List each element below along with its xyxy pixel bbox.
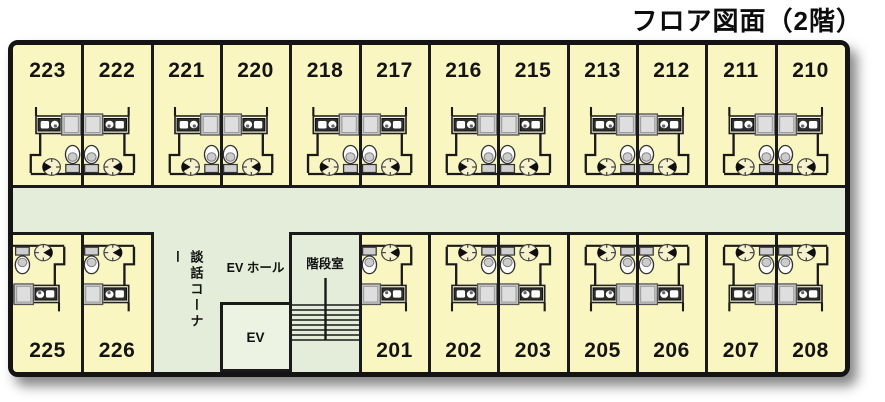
bathtub-icon bbox=[222, 114, 241, 135]
shower-drain-icon bbox=[520, 159, 538, 176]
room-210: 210 bbox=[776, 45, 845, 185]
sink-unit-icon bbox=[659, 119, 681, 132]
shower-drain-icon bbox=[520, 244, 538, 260]
page: フロア図面（2階） bbox=[0, 0, 885, 402]
toilet-icon bbox=[204, 146, 218, 173]
room-217: 217 bbox=[360, 45, 429, 185]
room-number: 216 bbox=[429, 59, 498, 83]
bathroom-wall bbox=[540, 134, 550, 174]
wall bbox=[497, 232, 500, 372]
room-number: 222 bbox=[82, 59, 152, 83]
floor-plan-frame: 223 bbox=[8, 40, 850, 377]
wall bbox=[775, 232, 778, 372]
bathroom-wall bbox=[586, 247, 595, 286]
wall bbox=[428, 45, 431, 188]
sink-unit-icon bbox=[104, 119, 126, 132]
sink-unit-icon bbox=[593, 288, 615, 300]
shower-drain-icon bbox=[736, 244, 754, 260]
toilet-icon bbox=[343, 146, 357, 173]
room-number: 221 bbox=[152, 59, 221, 83]
bathtub-icon bbox=[201, 114, 220, 135]
bathtub-icon bbox=[14, 284, 33, 305]
shower-drain-icon bbox=[181, 159, 199, 176]
sink-unit-icon bbox=[520, 288, 542, 300]
room-220: 220 bbox=[221, 45, 290, 185]
toilet-icon bbox=[223, 146, 237, 173]
shower-drain-icon bbox=[659, 244, 677, 260]
room-number: 217 bbox=[360, 59, 429, 83]
shower-drain-icon bbox=[597, 159, 615, 176]
bathroom-wall bbox=[724, 247, 734, 286]
wall bbox=[289, 45, 292, 188]
room-218: 218 bbox=[290, 45, 360, 185]
sink-unit-icon bbox=[454, 119, 476, 132]
bathroom-wall bbox=[55, 247, 64, 286]
room-number: 205 bbox=[568, 339, 637, 363]
room-number: 211 bbox=[706, 59, 776, 83]
shower-drain-icon bbox=[382, 244, 400, 260]
room-222: 222 bbox=[82, 45, 152, 185]
toilet-icon bbox=[639, 247, 653, 273]
bathtub-icon bbox=[499, 114, 519, 135]
bathtub-icon bbox=[83, 114, 103, 135]
bathroom-wall bbox=[679, 247, 688, 286]
bathtub-icon bbox=[755, 284, 775, 305]
room-number: 223 bbox=[13, 59, 82, 83]
bathtub-icon bbox=[478, 114, 497, 135]
shower-drain-icon bbox=[798, 244, 816, 260]
room-221: 221 bbox=[152, 45, 221, 185]
toilet-icon bbox=[620, 247, 634, 273]
wall bbox=[151, 45, 154, 188]
toilet-icon bbox=[362, 146, 376, 173]
room-206: 206 bbox=[637, 235, 706, 372]
room-number: 207 bbox=[706, 339, 776, 363]
toilet-icon bbox=[759, 146, 773, 173]
sink-unit-icon bbox=[35, 288, 57, 300]
wall bbox=[81, 45, 84, 188]
sink-unit-icon bbox=[243, 119, 265, 132]
toilet-icon bbox=[84, 146, 98, 173]
room-number: 201 bbox=[360, 339, 429, 363]
room-211: 211 bbox=[706, 45, 776, 185]
room-number: 202 bbox=[429, 339, 498, 363]
wall bbox=[497, 45, 500, 188]
room-216: 216 bbox=[429, 45, 498, 185]
bathtub-icon bbox=[755, 114, 775, 135]
sink-unit-icon bbox=[382, 119, 404, 132]
wall bbox=[705, 45, 708, 188]
room-number: 220 bbox=[221, 59, 290, 83]
room-205: 205 bbox=[568, 235, 637, 372]
room-226: 226 bbox=[82, 235, 152, 372]
room-225: 225 bbox=[13, 235, 82, 372]
bathroom-wall bbox=[31, 134, 40, 174]
shower-drain-icon bbox=[736, 159, 754, 176]
toilet-icon bbox=[15, 247, 29, 273]
sink-unit-icon bbox=[798, 119, 820, 132]
bathroom-wall bbox=[679, 134, 688, 174]
shower-drain-icon bbox=[104, 159, 122, 176]
sink-unit-icon bbox=[731, 119, 753, 132]
shower-drain-icon bbox=[35, 244, 53, 260]
bathroom-wall bbox=[447, 134, 456, 174]
shower-drain-icon bbox=[798, 159, 816, 176]
bathtub-icon bbox=[617, 114, 636, 135]
lounge-corner-label: 談話コーナー bbox=[152, 250, 221, 342]
bathtub-icon bbox=[361, 114, 380, 135]
toilet-icon bbox=[65, 146, 79, 173]
page-title: フロア図面（2階） bbox=[632, 1, 863, 38]
room-203: 203 bbox=[498, 235, 568, 372]
bathtub-icon bbox=[361, 284, 380, 305]
room-number: 208 bbox=[776, 339, 845, 363]
sink-unit-icon bbox=[177, 119, 199, 132]
stairwell-label: 階段室 bbox=[290, 253, 360, 272]
wall bbox=[567, 232, 570, 372]
sink-unit-icon bbox=[520, 119, 542, 132]
toilet-icon bbox=[778, 247, 792, 273]
shower-drain-icon bbox=[42, 159, 60, 176]
room-number: 206 bbox=[637, 339, 706, 363]
bathroom-wall bbox=[540, 247, 550, 286]
wall bbox=[705, 232, 708, 372]
sink-unit-icon bbox=[798, 288, 820, 300]
room-number: 215 bbox=[498, 59, 568, 83]
bathroom-wall bbox=[724, 134, 734, 174]
wall bbox=[359, 45, 362, 188]
wall bbox=[81, 232, 84, 372]
plan-inner: 223 bbox=[13, 45, 845, 372]
bathtub-icon bbox=[638, 114, 657, 135]
bathtub-icon bbox=[83, 284, 103, 305]
wall bbox=[567, 45, 570, 188]
elevator-shaft: EV bbox=[220, 302, 292, 372]
bathroom-wall bbox=[402, 247, 411, 286]
bathroom-wall bbox=[818, 247, 827, 286]
bathtub-icon bbox=[617, 284, 636, 305]
bathroom-wall bbox=[402, 134, 411, 174]
bathtub-icon bbox=[478, 284, 497, 305]
shower-drain-icon bbox=[320, 159, 338, 176]
room-208: 208 bbox=[776, 235, 845, 372]
wall bbox=[636, 45, 639, 188]
bathtub-icon bbox=[62, 114, 81, 135]
bathroom-wall bbox=[124, 134, 134, 174]
bathroom-wall bbox=[170, 134, 179, 174]
room-number: 210 bbox=[776, 59, 845, 83]
toilet-icon bbox=[778, 146, 792, 173]
room-202: 202 bbox=[429, 235, 498, 372]
toilet-icon bbox=[362, 247, 376, 273]
bathtub-icon bbox=[777, 284, 796, 305]
wall bbox=[775, 45, 778, 188]
shower-drain-icon bbox=[458, 244, 476, 260]
room-207: 207 bbox=[706, 235, 776, 372]
room-number: 203 bbox=[498, 339, 568, 363]
sink-unit-icon bbox=[104, 288, 126, 300]
sink-unit-icon bbox=[593, 119, 615, 132]
bathtub-icon bbox=[499, 284, 519, 305]
room-number: 226 bbox=[82, 339, 152, 363]
room-223: 223 bbox=[13, 45, 82, 185]
bathroom-wall bbox=[586, 134, 595, 174]
sink-unit-icon bbox=[659, 288, 681, 300]
lounge-corner-text: 談話コーナー bbox=[168, 250, 206, 342]
toilet-icon bbox=[620, 146, 634, 173]
toilet-icon bbox=[84, 247, 98, 273]
ev-hall-label: EV ホール bbox=[221, 257, 290, 276]
sink-unit-icon bbox=[731, 288, 753, 300]
sink-unit-icon bbox=[454, 288, 476, 300]
wall bbox=[428, 232, 431, 372]
room-201: 201 bbox=[360, 235, 429, 372]
shower-drain-icon bbox=[458, 159, 476, 176]
wall bbox=[220, 45, 223, 188]
shower-drain-icon bbox=[104, 244, 122, 260]
bathtub-icon bbox=[339, 114, 359, 135]
bathroom-wall bbox=[447, 247, 456, 286]
room-215: 215 bbox=[498, 45, 568, 185]
sink-unit-icon bbox=[38, 119, 60, 132]
toilet-icon bbox=[500, 146, 514, 173]
bathroom-wall bbox=[308, 134, 318, 174]
sink-unit-icon bbox=[315, 119, 337, 132]
shower-drain-icon bbox=[382, 159, 400, 176]
elevator-label: EV bbox=[246, 330, 264, 345]
toilet-icon bbox=[500, 247, 514, 273]
room-213: 213 bbox=[568, 45, 637, 185]
room-number: 213 bbox=[568, 59, 637, 83]
bathroom-wall bbox=[818, 134, 827, 174]
bathroom-wall bbox=[124, 247, 134, 286]
room-number: 212 bbox=[637, 59, 706, 83]
bathroom-wall bbox=[263, 134, 272, 174]
shower-drain-icon bbox=[659, 159, 677, 176]
shower-drain-icon bbox=[597, 244, 615, 260]
toilet-icon bbox=[759, 247, 773, 273]
wall bbox=[636, 232, 639, 372]
shower-drain-icon bbox=[243, 159, 261, 176]
sink-unit-icon bbox=[382, 288, 404, 300]
corridor-wall bbox=[13, 185, 845, 188]
bathtub-icon bbox=[777, 114, 796, 135]
toilet-icon bbox=[639, 146, 653, 173]
room-212: 212 bbox=[637, 45, 706, 185]
room-number: 218 bbox=[290, 59, 360, 83]
bathtub-icon bbox=[638, 284, 657, 305]
toilet-icon bbox=[481, 247, 495, 273]
toilet-icon bbox=[481, 146, 495, 173]
room-number: 225 bbox=[13, 339, 82, 363]
